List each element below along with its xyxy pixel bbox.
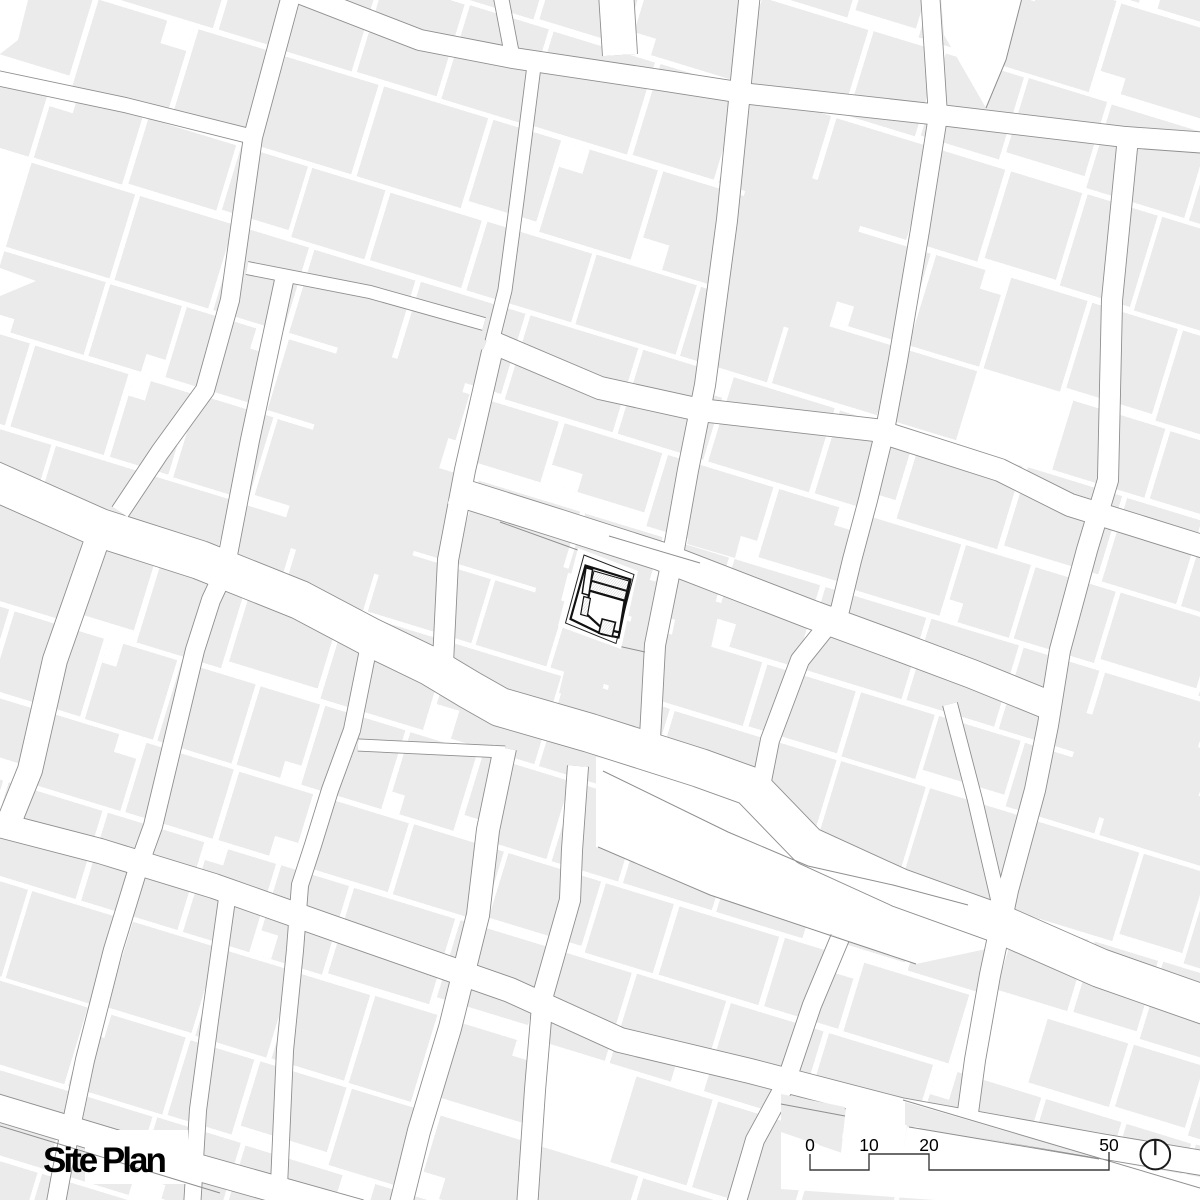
svg-text:50: 50: [1099, 1135, 1119, 1155]
svg-text:10: 10: [859, 1135, 879, 1155]
svg-text:Site Plan: Site Plan: [43, 1141, 165, 1180]
svg-text:0: 0: [805, 1135, 815, 1155]
svg-text:20: 20: [919, 1135, 939, 1155]
